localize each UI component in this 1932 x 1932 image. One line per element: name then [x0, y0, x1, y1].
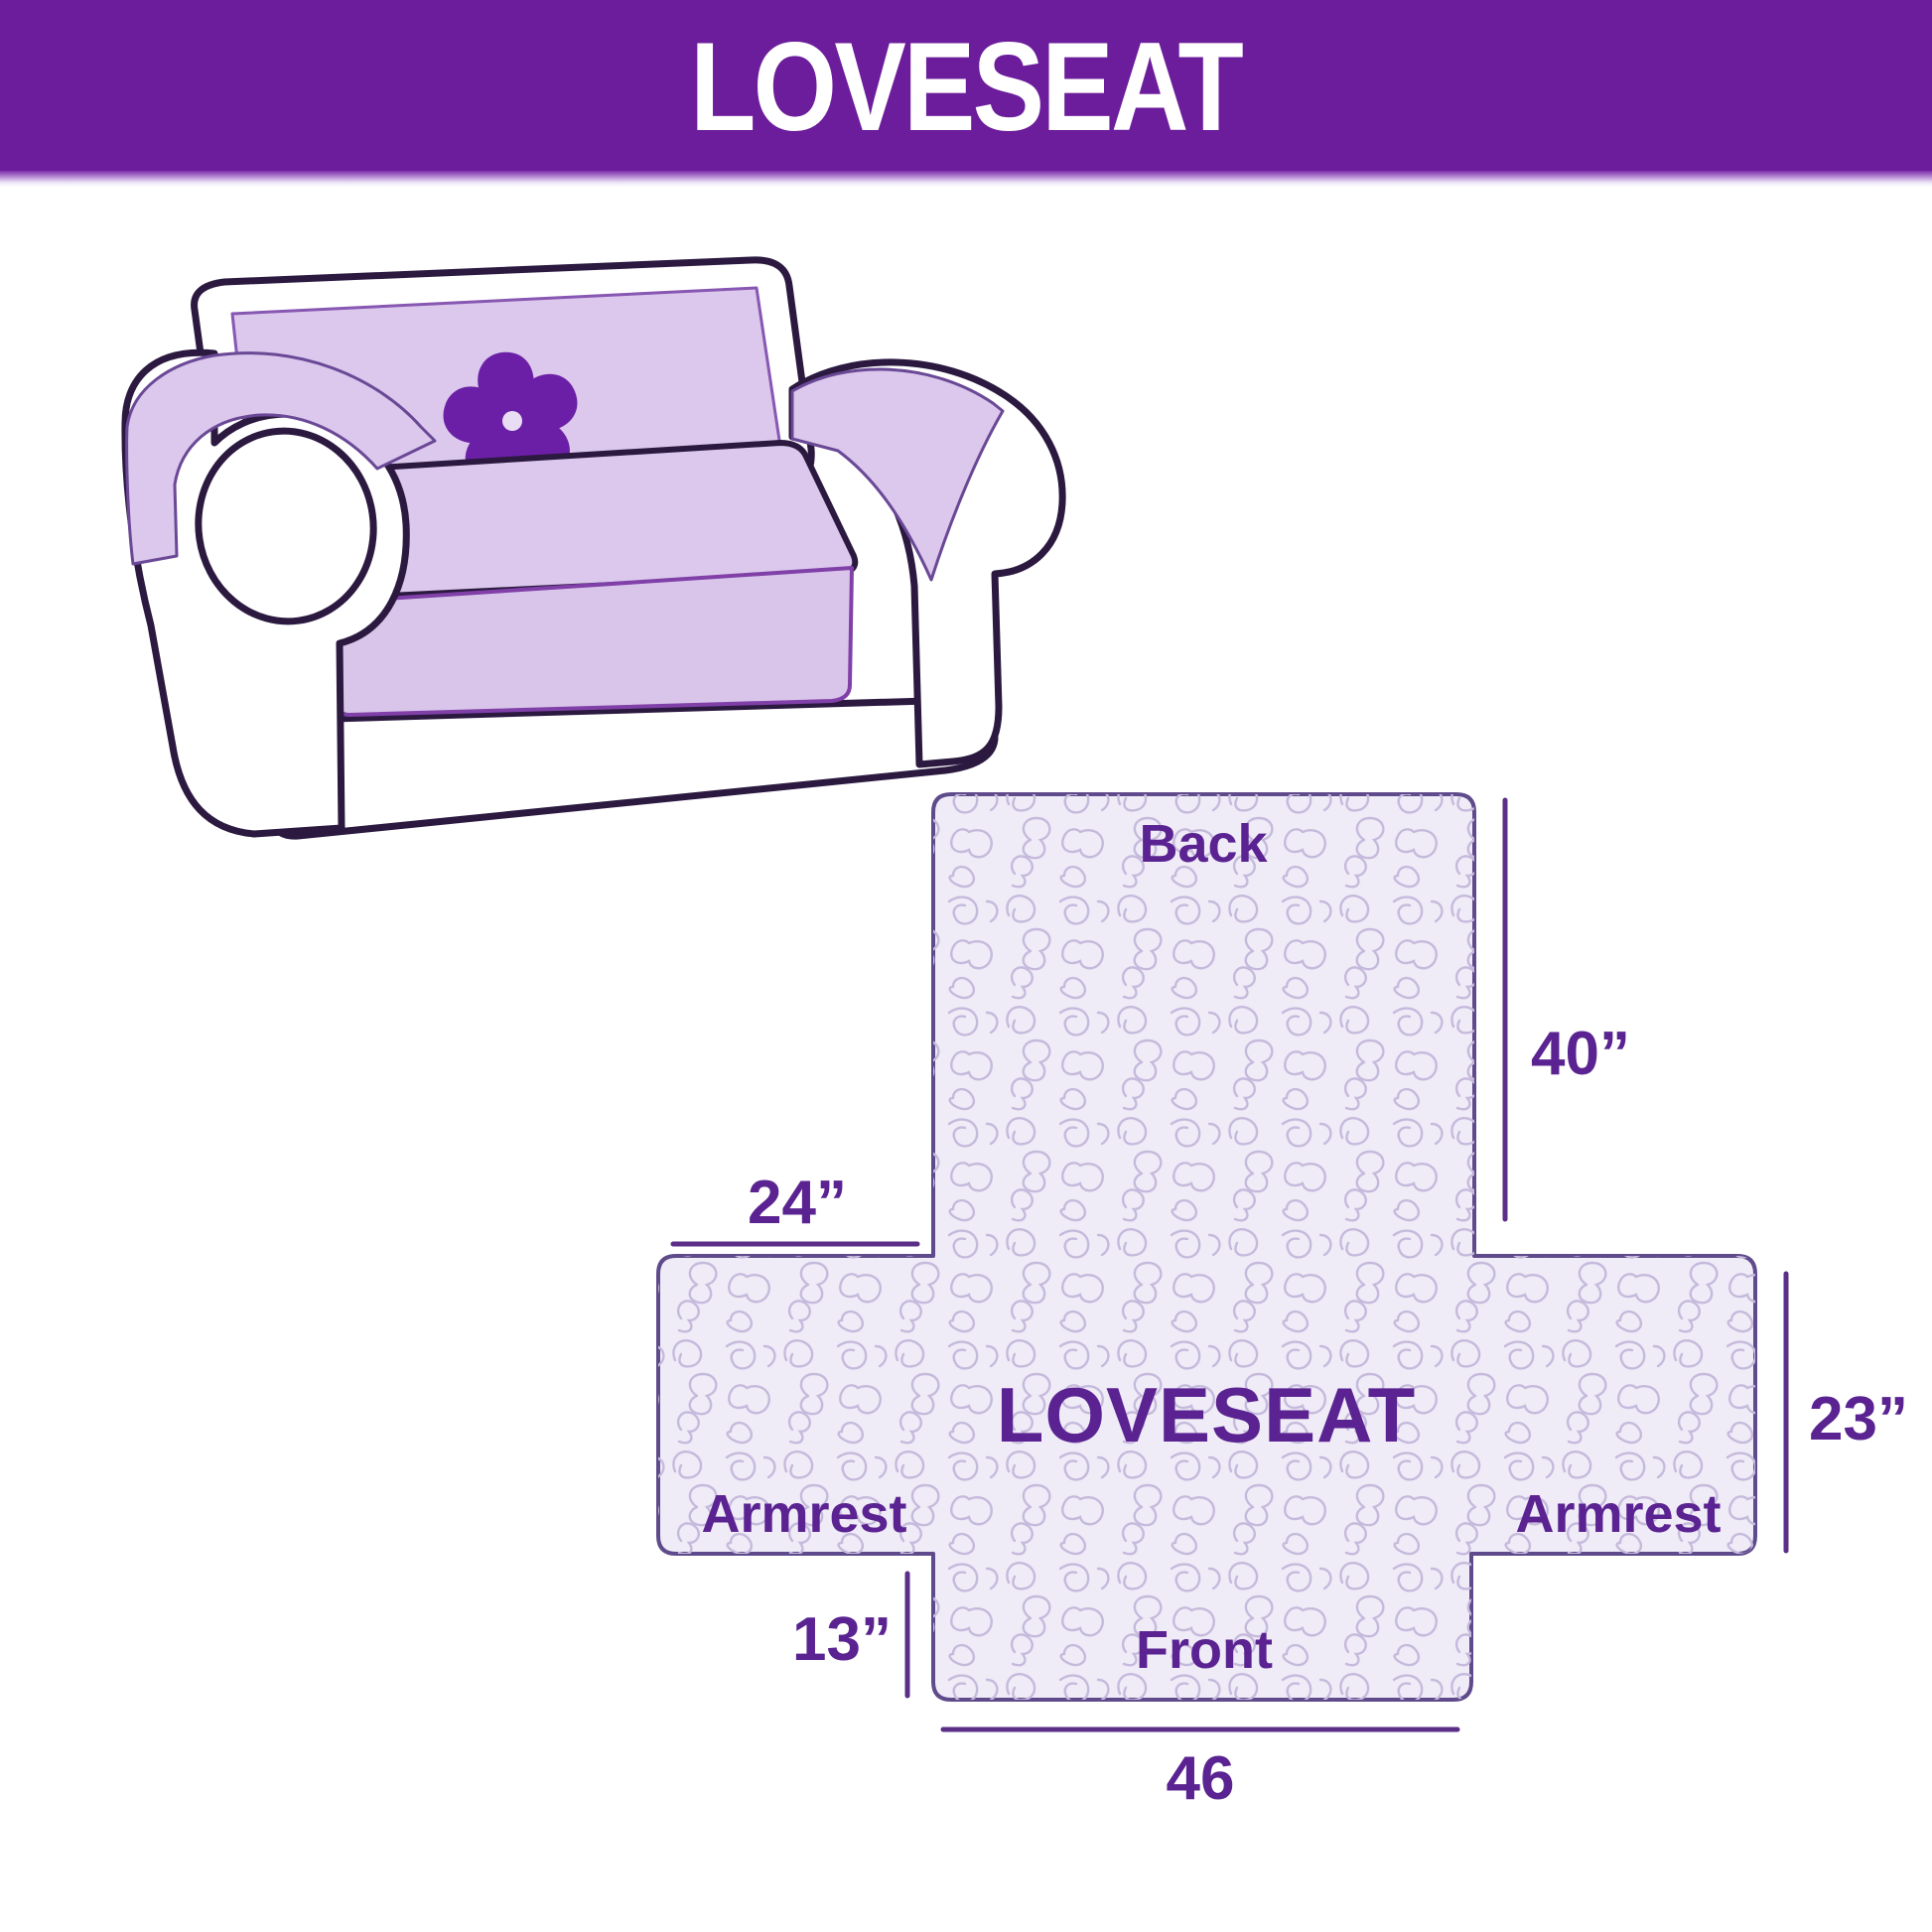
diagram-front-label: Front: [1136, 1620, 1273, 1680]
dimension-front-height: 13”: [792, 1605, 892, 1674]
header-divider: [0, 171, 1932, 187]
cover-layout-diagram: Back LOVESEAT Armrest Armrest Front 40” …: [536, 764, 1932, 1847]
header-bar: LOVESEAT: [0, 0, 1932, 171]
cover-cross-shape: [658, 794, 1755, 1700]
diagram-armrest-left-label: Armrest: [701, 1484, 906, 1544]
diagram-back-label: Back: [1139, 814, 1268, 874]
dimension-back-height: 40”: [1531, 1020, 1630, 1088]
page: LOVESEAT: [0, 0, 1932, 1932]
page-title: LOVESEAT: [691, 24, 1242, 150]
dimension-front-width: 46: [1167, 1744, 1235, 1813]
diagram-armrest-right-label: Armrest: [1515, 1484, 1721, 1544]
dimension-armrest-width: 24”: [748, 1169, 847, 1237]
dimension-armrest-height: 23”: [1809, 1385, 1908, 1453]
diagram-title: LOVESEAT: [997, 1371, 1417, 1458]
